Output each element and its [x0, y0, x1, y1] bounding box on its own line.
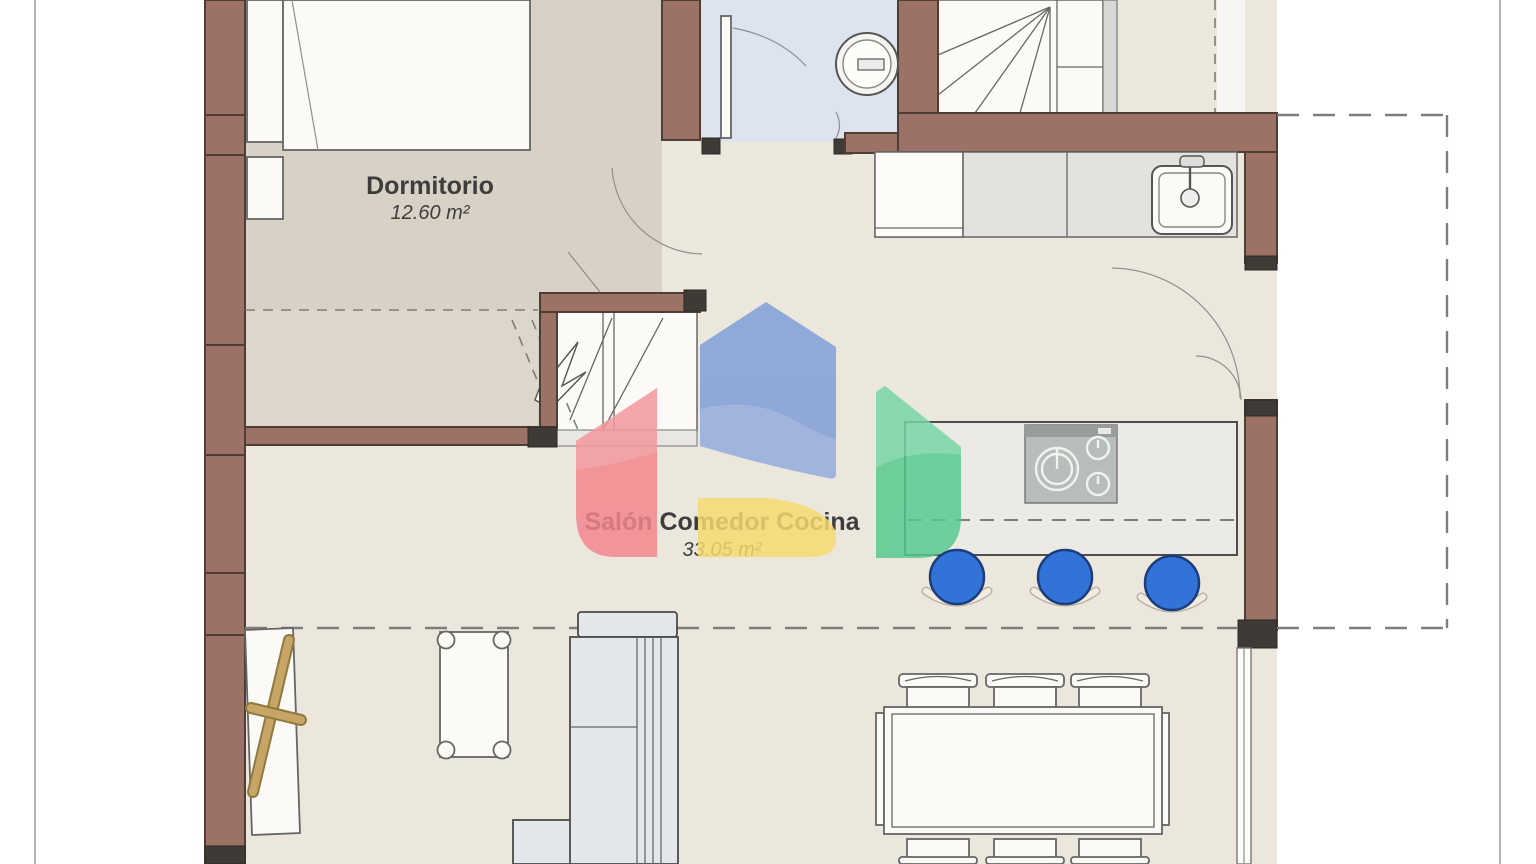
side-table: [438, 632, 511, 759]
bathroom-right-wall: [898, 0, 938, 115]
cooktop: [1025, 425, 1117, 503]
bathroom-door-leaf: [721, 16, 731, 138]
dining-chair: [899, 839, 977, 864]
bathroom-left-wall: [662, 0, 700, 140]
bar-stools: [926, 550, 1203, 610]
dining-chair: [899, 674, 977, 708]
upper-stairs-area: [938, 0, 1103, 113]
sofa-headrest: [578, 612, 677, 637]
kitchen: [875, 152, 1237, 237]
dining-chair: [1071, 674, 1149, 708]
floor-plan-page: Dormitorio 12.60 m² Salón Comedor Cocina…: [0, 0, 1536, 864]
stair-stringer: [1103, 0, 1117, 113]
north-wall: [898, 113, 1277, 152]
faucet-icon: [1180, 156, 1204, 167]
dishwasher: [875, 152, 963, 237]
room-label-dormitorio: Dormitorio: [366, 172, 494, 200]
floor-plan-drawing: Dormitorio 12.60 m² Salón Comedor Cocina…: [0, 0, 1536, 864]
bedroom-bottom-wall: [245, 427, 540, 445]
dining-chair: [986, 839, 1064, 864]
stairwell-top-wall: [540, 293, 700, 312]
closet-area: [1217, 0, 1245, 113]
bedroom-understair-zone: [245, 310, 538, 427]
right-window: [1237, 648, 1251, 864]
kitchen-sink: [1152, 156, 1232, 234]
room-area-dormitorio: 12.60 m²: [391, 202, 471, 224]
stairwell-left-wall: [540, 312, 557, 427]
sideboard: [245, 628, 301, 835]
bedroom-cabinet: [247, 157, 283, 219]
toilet: [836, 33, 898, 95]
bed: [283, 0, 530, 150]
dining-chair: [986, 674, 1064, 708]
dining-chair: [1071, 839, 1149, 864]
right-outer-wall-lower: [1245, 400, 1277, 630]
nightstand: [247, 0, 283, 142]
right-outer-wall-upper: [1245, 152, 1277, 263]
